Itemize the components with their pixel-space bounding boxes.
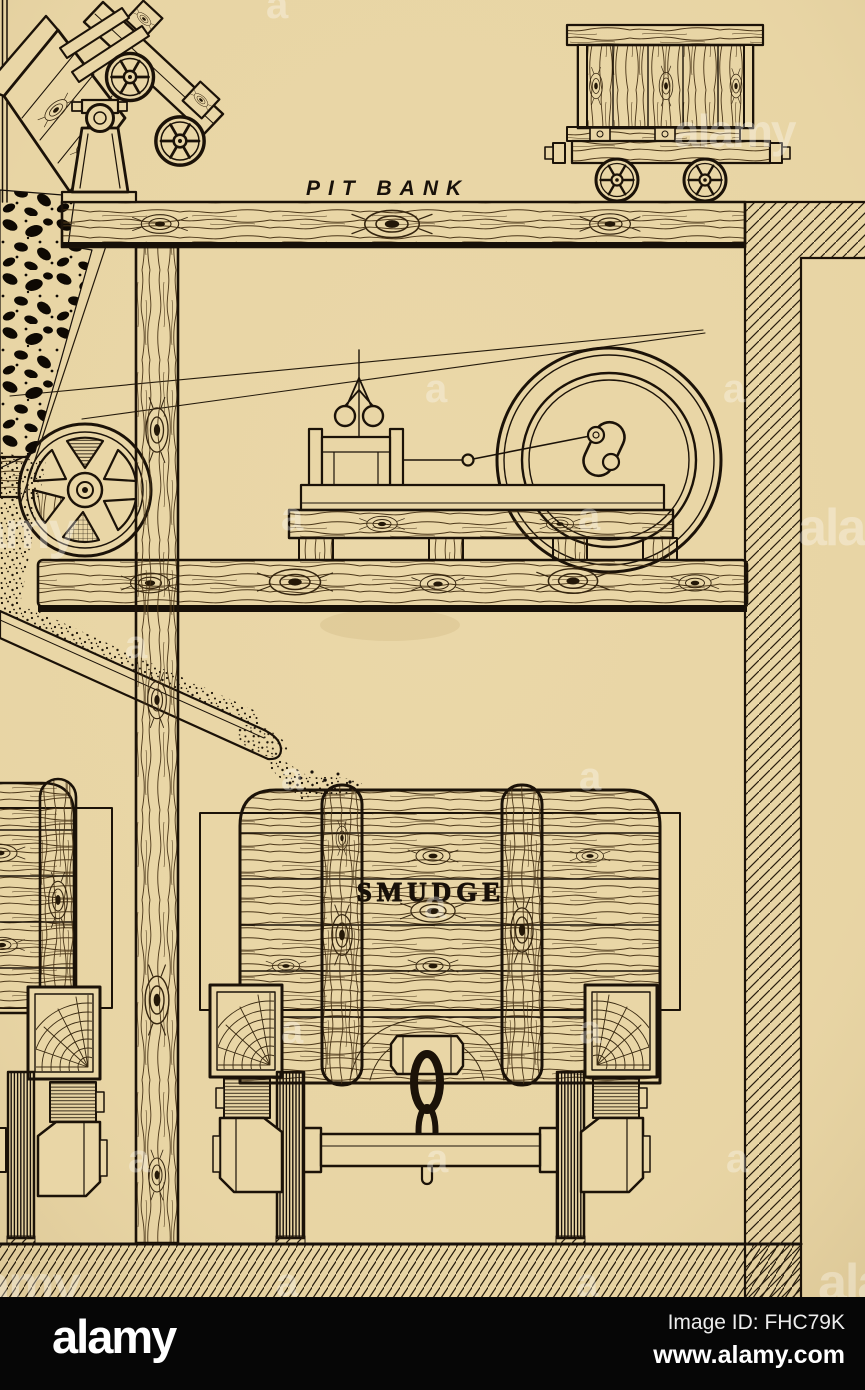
ground-hatch xyxy=(0,1244,801,1297)
alamy-url: www.alamy.com xyxy=(653,1341,845,1370)
watermark-letter: a xyxy=(281,495,304,539)
watermark-letter: a xyxy=(125,623,148,667)
alamy-stock-photo: PIT BANK xyxy=(0,0,865,1390)
watermark-word: alamy xyxy=(818,1254,865,1297)
watermark-letter: a xyxy=(276,1261,299,1297)
watermark-letter: a xyxy=(579,1008,602,1052)
tipper-pulley-upper xyxy=(106,53,153,100)
watermark-word: alamy xyxy=(0,502,78,560)
alamy-logo: alamy xyxy=(52,1309,175,1364)
footer-bar: alamy Image ID: FHC79K www.alamy.com xyxy=(0,1297,865,1390)
crosshead xyxy=(463,455,474,466)
watermark-letter: a xyxy=(426,1137,449,1181)
watermark-letter: a xyxy=(576,1261,599,1297)
watermark-word: alamy xyxy=(0,1256,82,1297)
watermark-letter: a xyxy=(578,495,601,539)
watermark-letter: a xyxy=(281,1008,304,1052)
watermark-letter: a xyxy=(579,755,602,799)
wagon-lid xyxy=(567,25,763,45)
watermark-letter: a xyxy=(266,0,289,27)
pit-bank-beam xyxy=(62,202,745,247)
watermark-letter: a xyxy=(723,367,746,411)
wheel-edge xyxy=(8,1072,34,1238)
watermark-word: alamy xyxy=(674,105,797,157)
watermark-letter: a xyxy=(424,883,447,927)
engraving-illustration: PIT BANK xyxy=(0,0,865,1297)
paper-stain xyxy=(320,609,460,641)
watermark-letter: a xyxy=(425,367,448,411)
cylinder-block xyxy=(309,429,403,488)
watermark-letter: a xyxy=(128,1137,151,1181)
wagon-wheel-right xyxy=(684,159,726,201)
wagon-wheel-left xyxy=(596,159,638,201)
tipper-pulley-lower xyxy=(156,117,204,165)
axle-stub xyxy=(0,1128,6,1172)
image-id: Image ID: FHC79K xyxy=(653,1311,845,1335)
pit-bank-label: PIT BANK xyxy=(306,177,469,200)
watermark-letter: a xyxy=(281,755,304,799)
watermark-letter: a xyxy=(726,1137,749,1181)
timber-post xyxy=(136,247,178,1243)
watermark-word: alamy xyxy=(798,499,865,557)
